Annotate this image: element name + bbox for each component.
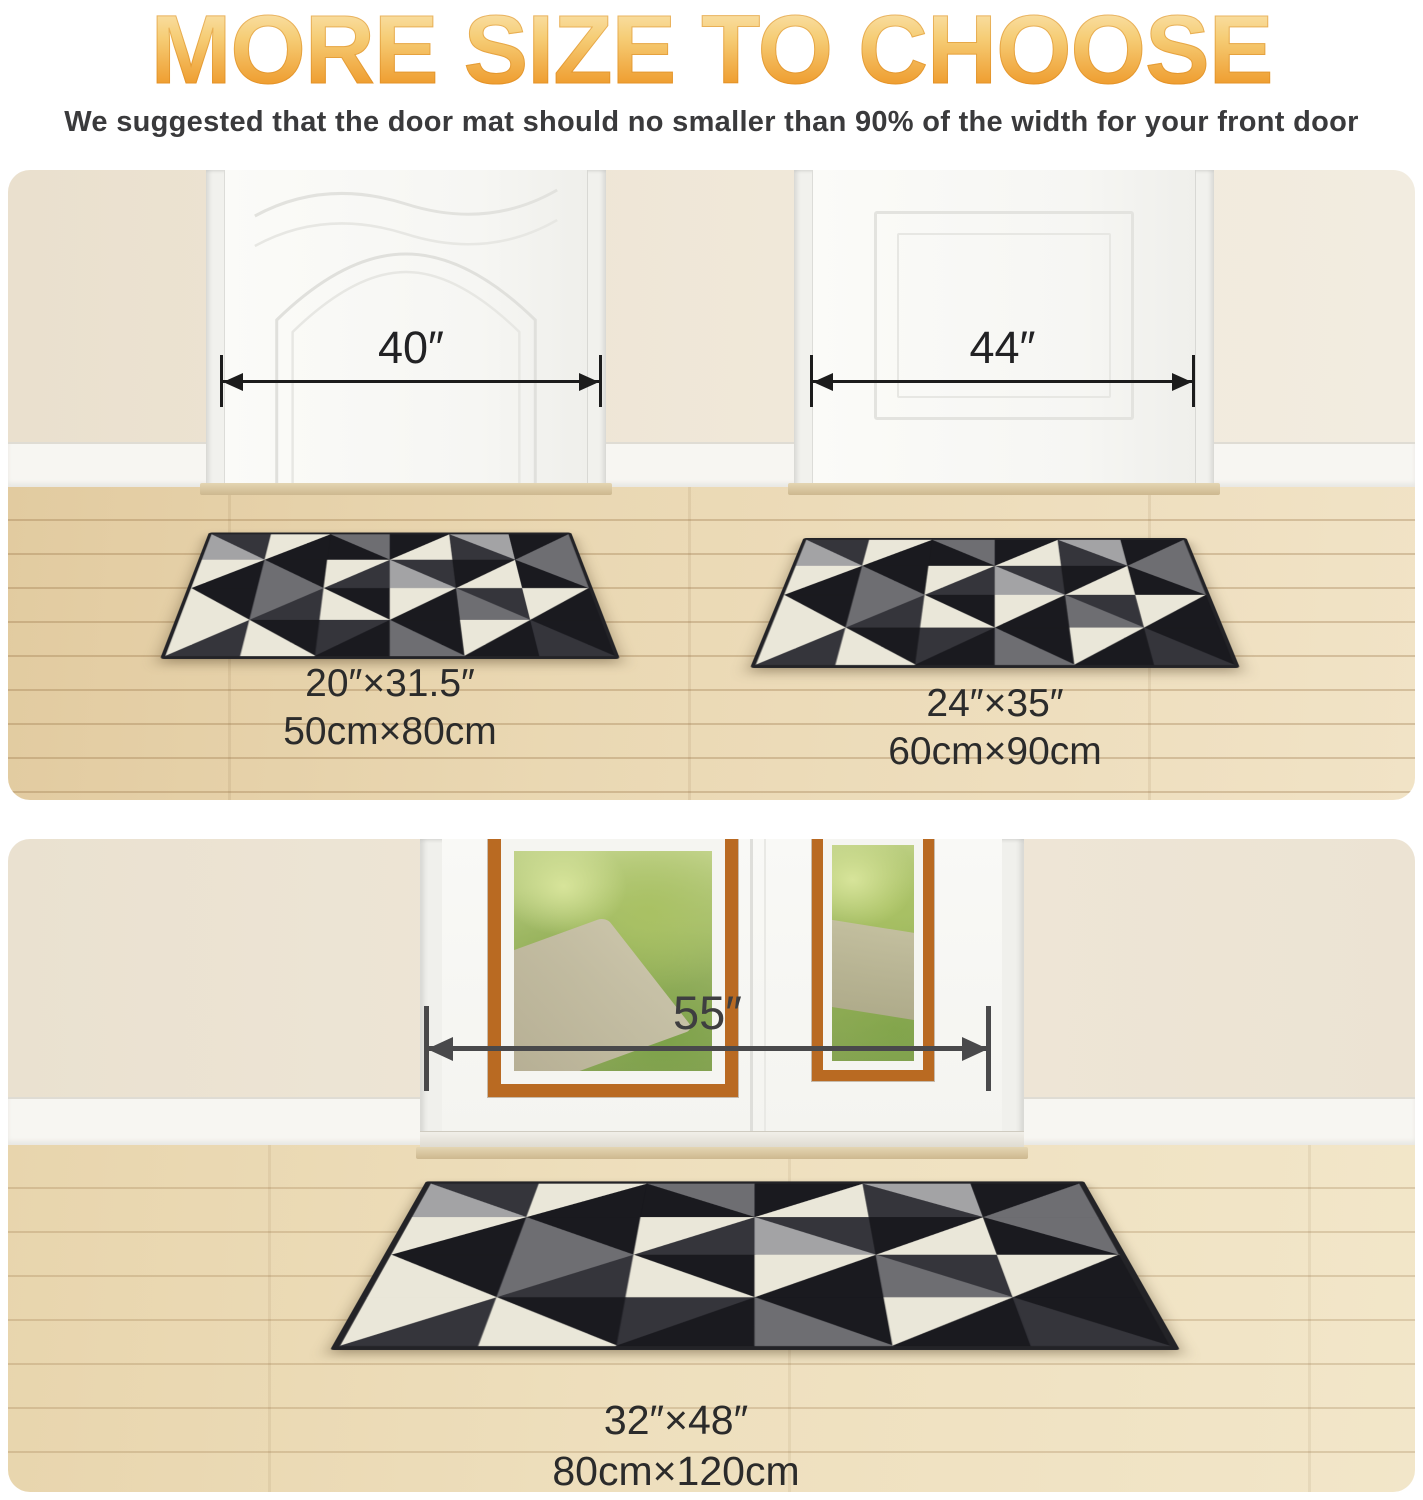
doormat-pattern — [330, 1181, 1180, 1350]
page-title: MORE SIZE TO CHOOSE — [0, 0, 1423, 106]
door-threshold — [200, 483, 612, 495]
doormat-pattern — [750, 538, 1240, 668]
arrowhead-right-icon — [1172, 373, 1192, 391]
door-width-dimension-40: 40″ — [221, 322, 601, 383]
dimension-value: 44″ — [811, 322, 1194, 374]
dimension-tick-right — [986, 1006, 991, 1091]
doormat-24x35 — [750, 538, 1240, 668]
arrowhead-left-icon — [427, 1037, 453, 1061]
dimension-tick-right — [599, 355, 602, 407]
mat-size-cm: 80cm×120cm — [476, 1446, 876, 1492]
dimension-arrow — [811, 380, 1194, 383]
product-infographic: MORE SIZE TO CHOOSE We suggested that th… — [0, 0, 1423, 1500]
mat-size-cm: 50cm×80cm — [190, 708, 590, 756]
door-sill — [416, 1147, 1028, 1159]
top-scene-panel: 40″ 44″ 20″×31.5 — [8, 170, 1415, 800]
door-width-dimension-44: 44″ — [811, 322, 1194, 383]
door-width-dimension-55: 55″ — [425, 985, 990, 1051]
mat-size-inches: 24″×35″ — [795, 680, 1195, 728]
arrowhead-left-icon — [223, 373, 243, 391]
mat-size-label-right: 24″×35″ 60cm×90cm — [795, 680, 1195, 777]
mat-size-label-bottom: 32″×48″ 80cm×120cm — [476, 1395, 876, 1492]
mat-size-inches: 20″×31.5″ — [190, 660, 590, 708]
mat-size-inches: 32″×48″ — [476, 1395, 876, 1446]
arrowhead-left-icon — [813, 373, 833, 391]
mat-size-label-left: 20″×31.5″ 50cm×80cm — [190, 660, 590, 757]
dimension-arrow — [221, 380, 601, 383]
doormat-pattern — [160, 533, 620, 659]
door-threshold — [788, 483, 1220, 495]
doormat-20x31 — [160, 533, 620, 659]
mat-size-cm: 60cm×90cm — [795, 728, 1195, 776]
dimension-value: 55″ — [425, 985, 990, 1040]
arrowhead-right-icon — [579, 373, 599, 391]
dimension-arrow — [425, 1046, 990, 1051]
bottom-scene-panel: 55″ 32″×48″ 80cm×120cm — [8, 839, 1415, 1492]
dimension-tick-right — [1192, 355, 1195, 407]
doormat-32x48 — [330, 1181, 1180, 1350]
dimension-value: 40″ — [221, 322, 601, 374]
door-window-large — [488, 839, 738, 1097]
page-subtitle: We suggested that the door mat should no… — [0, 106, 1423, 139]
arrowhead-right-icon — [962, 1037, 988, 1061]
